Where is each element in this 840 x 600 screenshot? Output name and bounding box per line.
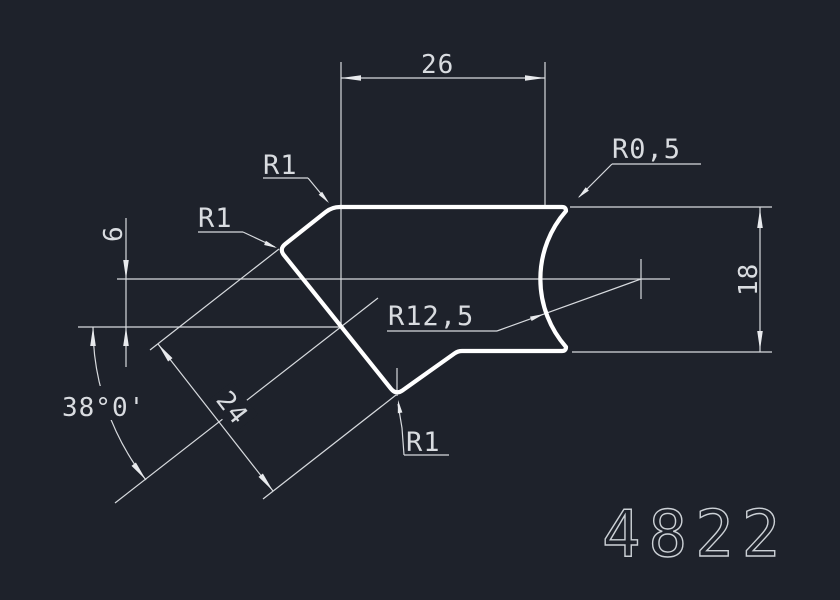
- dim-26-label: 26: [421, 50, 454, 80]
- radius-r1-bottom-label: R1: [406, 427, 441, 458]
- cad-drawing: 26 18 6 24 38°0' R1 R1 R1 R0,5 R12,5 482…: [0, 0, 840, 600]
- part-number: 4822: [602, 498, 788, 572]
- dim-18-label: 18: [734, 263, 764, 296]
- cad-viewport: 26 18 6 24 38°0' R1 R1 R1 R0,5 R12,5 482…: [0, 0, 840, 600]
- radius-r1-left-label: R1: [198, 203, 233, 234]
- radius-r1-top-label: R1: [263, 150, 298, 181]
- radius-r125-label: R12,5: [388, 301, 474, 332]
- dim-6-label: 6: [99, 225, 129, 242]
- radius-r05-label: R0,5: [612, 134, 681, 165]
- dim-angle-label: 38°0': [62, 393, 145, 423]
